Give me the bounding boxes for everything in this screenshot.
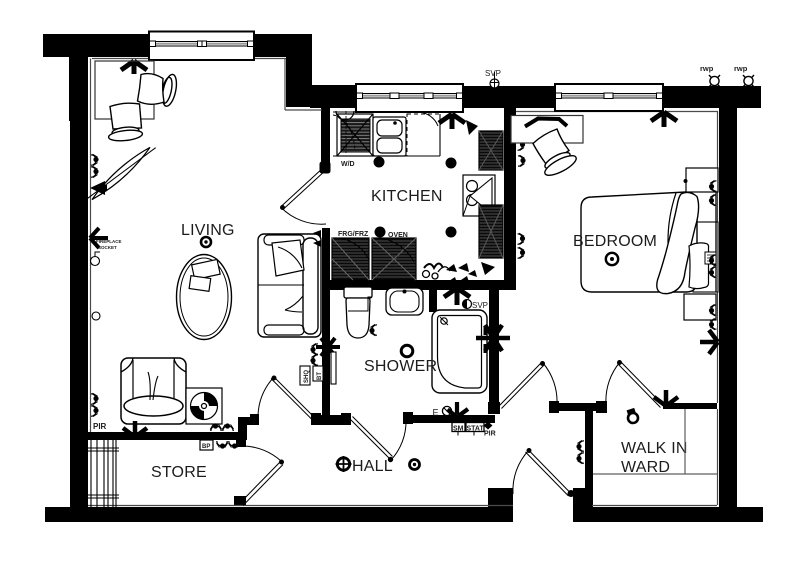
svg-text:SOCKET: SOCKET: [98, 245, 117, 250]
svg-text:BEDROOM: BEDROOM: [573, 233, 657, 250]
svg-text:rwp: rwp: [700, 64, 714, 73]
svg-text:W/D: W/D: [341, 161, 355, 168]
svg-text:HALL: HALL: [352, 458, 393, 475]
svg-text:BP: BP: [202, 444, 210, 450]
svg-text:WALK IN: WALK IN: [621, 440, 688, 457]
svg-text:SM: SM: [453, 426, 464, 433]
svg-text:SHQ: SHQ: [304, 370, 310, 383]
svg-text:SVP: SVP: [472, 301, 488, 310]
svg-text:FIREPLACE: FIREPLACE: [96, 239, 122, 244]
svg-text:PIR: PIR: [484, 431, 496, 438]
svg-text:SHOWER: SHOWER: [364, 358, 437, 375]
svg-text:rwp: rwp: [734, 64, 748, 73]
svg-text:E: E: [433, 408, 439, 418]
svg-text:SVP: SVP: [485, 69, 501, 78]
svg-text:STORE: STORE: [151, 464, 207, 481]
svg-text:BT: BT: [317, 372, 323, 380]
svg-text:PIR: PIR: [93, 422, 107, 431]
svg-text:FRG/FRZ: FRG/FRZ: [338, 231, 369, 238]
svg-text:STAT: STAT: [467, 426, 485, 433]
svg-text:KITCHEN: KITCHEN: [371, 188, 443, 205]
